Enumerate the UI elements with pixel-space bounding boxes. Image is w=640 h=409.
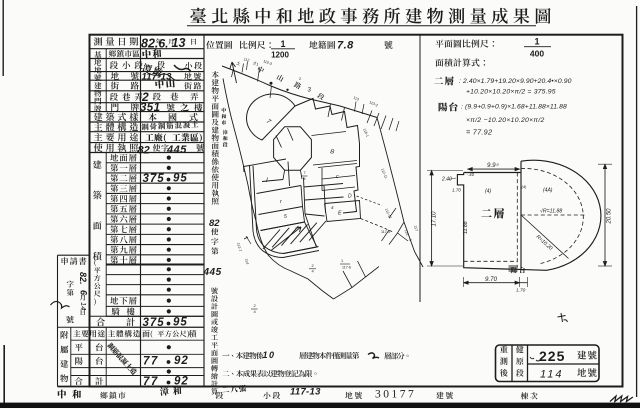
svg-text:1.70: 1.70 [452,188,461,193]
svg-text:1: 1 [534,37,539,47]
svg-text:95: 95 [173,173,188,185]
svg-text:6.: 6. [159,36,169,50]
svg-text:2.40: 2.40 [441,177,452,183]
svg-text:17.10: 17.10 [432,211,438,227]
svg-text:7: 7 [304,171,306,175]
svg-text:375: 375 [143,173,165,185]
svg-text:E: E [338,211,342,217]
svg-text:400: 400 [530,49,544,59]
svg-text:445: 445 [166,144,187,156]
svg-text:: 2.40×1.79+19.20×9.90+20.4•×0: : 2.40×1.79+19.20×9.90+20.4•×0.90 [459,78,572,85]
svg-text:= 77.92: = 77.92 [466,128,492,137]
svg-text:95: 95 [173,317,188,329]
svg-text:D: D [348,194,352,200]
svg-text:(4): (4) [485,189,491,195]
svg-text:11.88: 11.88 [463,221,469,234]
svg-text:14: 14 [79,302,88,310]
svg-text:82: 82 [138,145,150,157]
svg-text:√R=11.88: √R=11.88 [540,208,562,215]
svg-text:1: 1 [280,39,285,49]
svg-text:114: 114 [540,369,564,381]
svg-text:30177: 30177 [375,389,416,401]
svg-text:117-13: 117-13 [290,387,321,398]
svg-text:351: 351 [140,102,160,114]
svg-text:9.9: 9.9 [487,162,496,169]
svg-text:92: 92 [174,376,189,388]
svg-text:82.: 82. [141,37,158,51]
svg-text:: (9.9+0.9+0.9)×1.68+11.88×11.: : (9.9+0.9+0.9)×1.68+11.88×11.88 [461,104,567,111]
svg-text:82.: 82. [78,272,88,285]
svg-text:10: 10 [263,350,276,360]
svg-text:+10.20×10.20×π/2 = 375.95: +10.20×10.20×π/2 = 375.95 [466,89,556,96]
svg-text:77: 77 [143,356,159,368]
svg-text:375: 375 [143,317,165,329]
svg-text:20.50: 20.50 [607,208,613,225]
svg-text:445: 445 [203,267,222,278]
svg-text:I: I [266,177,268,184]
svg-text:82: 82 [209,218,220,229]
svg-text:77: 77 [143,376,159,388]
svg-text:×π/2 −10.20×10.20×π/2: ×π/2 −10.20×10.20×π/2 [466,117,545,124]
svg-text:117-4: 117-4 [381,230,390,234]
svg-text:1.70: 1.70 [516,288,526,294]
svg-text:1200: 1200 [271,51,289,60]
svg-text:5: 5 [284,214,287,220]
svg-text:c: c [336,174,339,180]
svg-text:1: 1 [341,259,343,263]
svg-text:13: 13 [172,36,186,50]
svg-text:225: 225 [539,348,565,364]
svg-text:117-13: 117-13 [142,71,173,82]
svg-text:117-6: 117-6 [342,266,351,270]
svg-text:2: 2 [299,77,301,81]
svg-text:7.8: 7.8 [337,40,354,52]
svg-text:9.70: 9.70 [485,276,498,283]
svg-text:(4): (4) [522,184,528,189]
svg-text:92: 92 [174,355,189,367]
svg-text:(4A): (4A) [543,188,553,194]
